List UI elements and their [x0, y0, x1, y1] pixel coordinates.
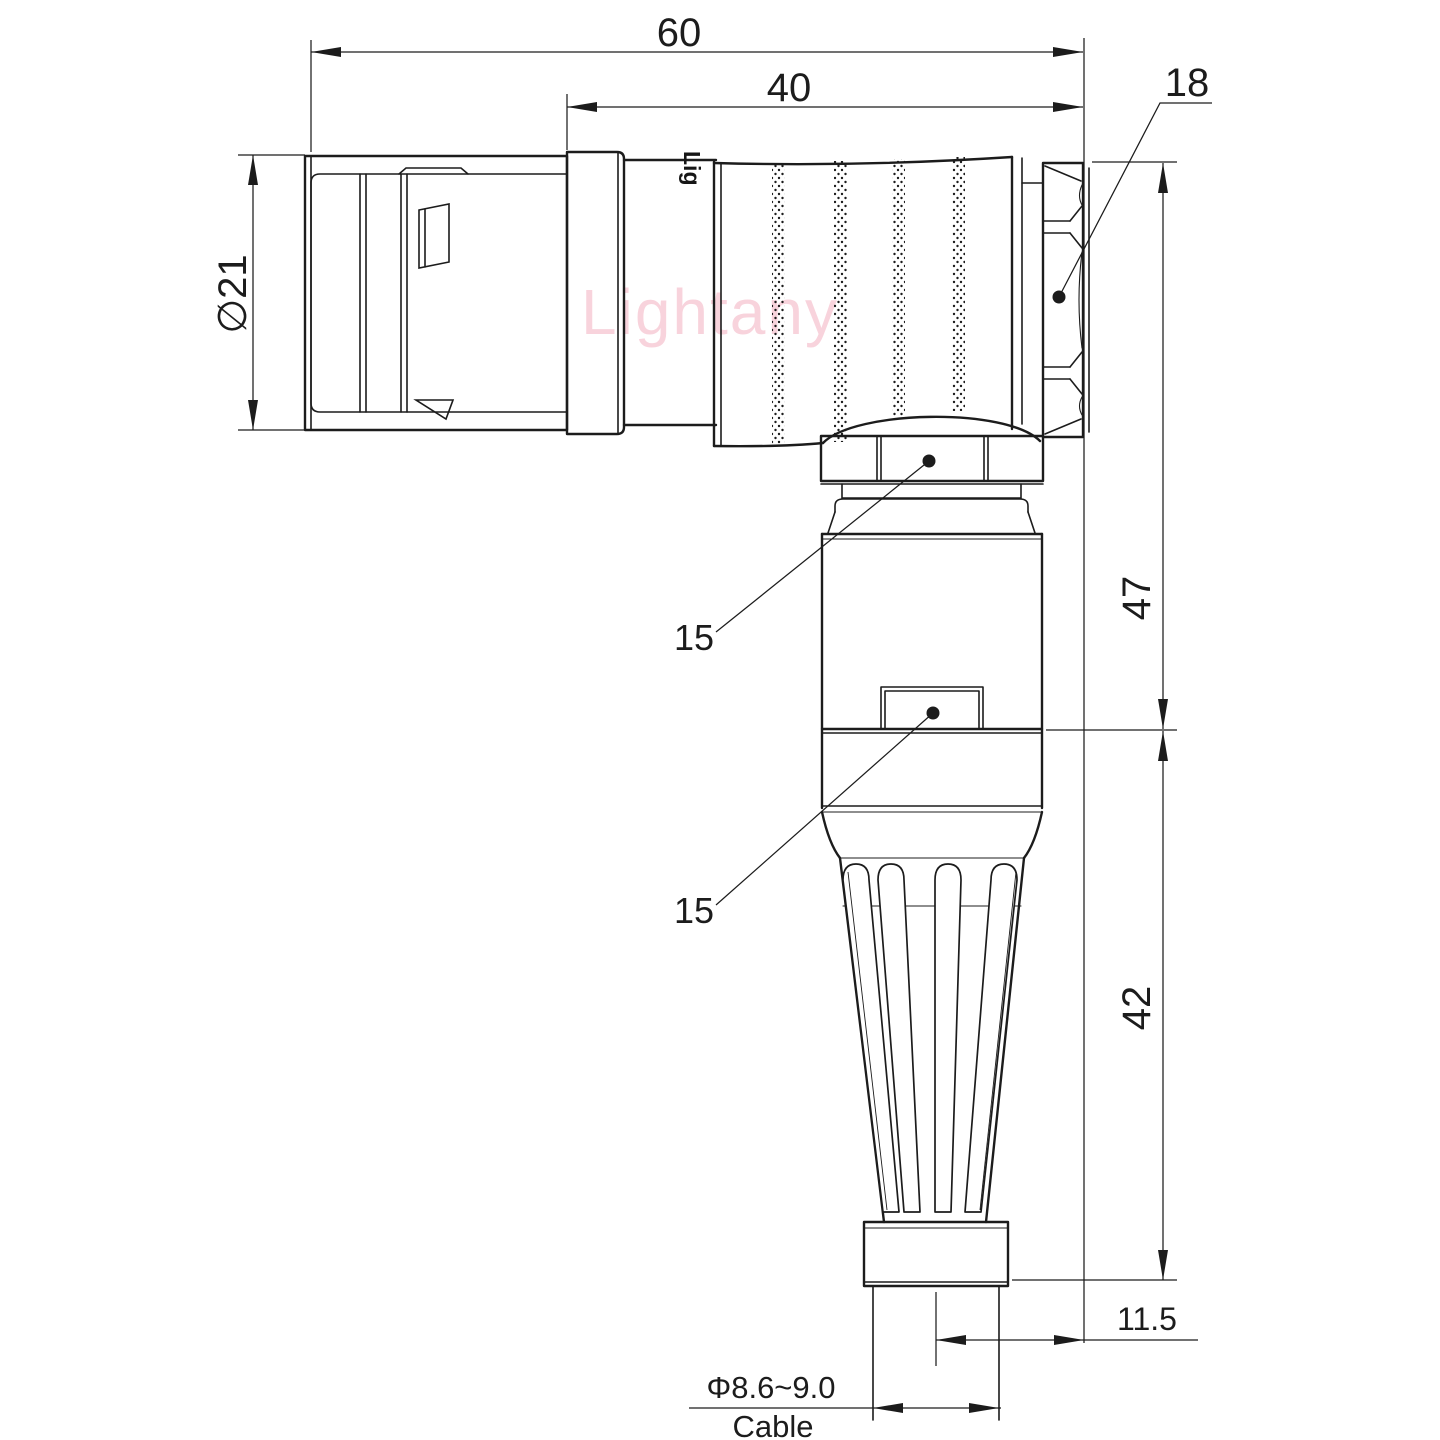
dim-47-label: 47 — [1115, 576, 1159, 621]
callout-18-hex-nut: 18 — [1053, 61, 1213, 304]
plug-front-sleeve — [305, 156, 567, 430]
dim-40-label: 40 — [767, 66, 812, 110]
dim-offset-11_5: 11.5 — [936, 1301, 1198, 1345]
dim-offset-label: 11.5 — [1117, 1301, 1177, 1337]
watermark-text: Lightany — [581, 276, 839, 348]
shoulder — [822, 812, 1042, 858]
technical-drawing-page: Lightany Lig — [0, 0, 1440, 1440]
body-cylinder — [822, 534, 1042, 858]
knurl-band — [834, 161, 847, 442]
dim-front-diameter-21: ∅21 — [211, 155, 258, 430]
callout-15-gland: 15 — [674, 455, 936, 659]
cable-caption-label: Cable — [733, 1409, 814, 1440]
brand-print-text: Lig — [679, 151, 705, 186]
dim-height-lower-42: 42 — [1115, 731, 1168, 1280]
strain-relief — [840, 858, 1024, 1222]
elbow-hump — [823, 417, 1040, 443]
relief-slot — [935, 864, 961, 1212]
dim-cable-diameter: Φ8.6~9.0 Cable — [689, 1370, 1001, 1440]
dim-diameter-label: ∅21 — [211, 254, 255, 333]
dim-60-label: 60 — [657, 11, 702, 55]
callout-15b-label: 15 — [674, 890, 714, 931]
bayonet-notch — [416, 400, 453, 419]
latch-tab — [399, 168, 468, 174]
relief-slot — [965, 864, 1017, 1212]
dim-42-label: 42 — [1115, 986, 1159, 1031]
knurl-band — [952, 157, 965, 411]
cable-diameter-label: Φ8.6~9.0 — [706, 1370, 835, 1405]
connector-drawing-canvas: Lightany Lig — [0, 0, 1440, 1440]
callout-18-label: 18 — [1165, 61, 1210, 105]
gland-rings — [828, 484, 1035, 533]
knurl-band — [892, 159, 905, 416]
knurl-band — [772, 163, 785, 444]
extension-lines — [238, 38, 1177, 1366]
dim-rear-length-40: 40 — [567, 66, 1083, 112]
callout-15a-label: 15 — [674, 617, 714, 658]
dim-overall-length-60: 60 — [311, 11, 1083, 57]
dim-height-upper-47: 47 — [1115, 163, 1168, 729]
latch-window — [419, 204, 449, 268]
